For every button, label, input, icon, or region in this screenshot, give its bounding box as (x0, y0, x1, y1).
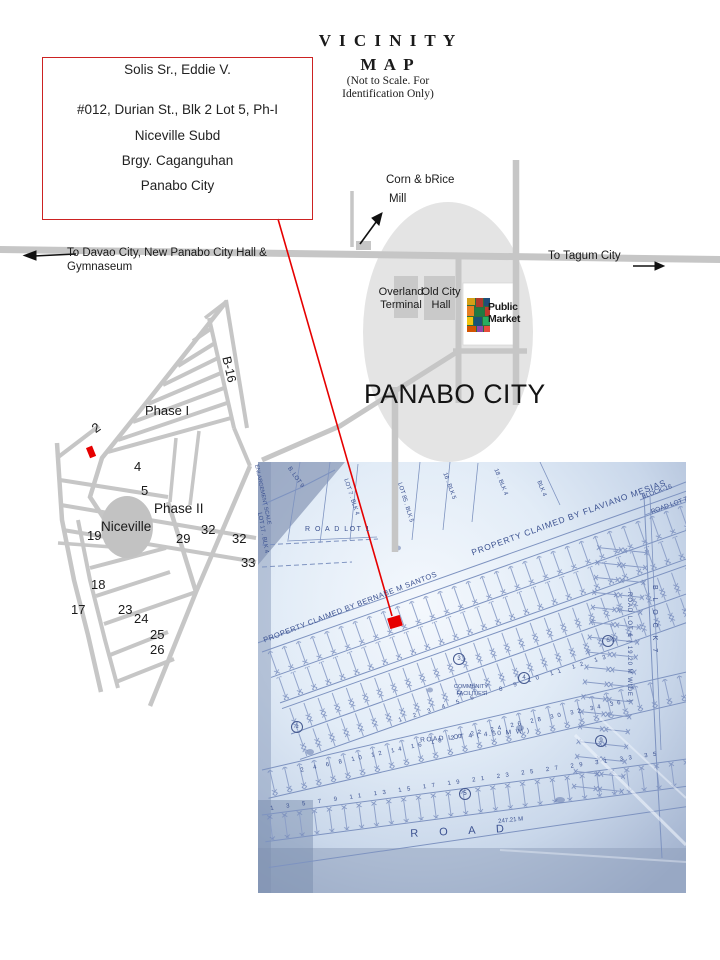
mill-arrow (360, 213, 382, 244)
photo-road-lot6: ROAD LOT 6 ( 19.20 M WIDE ) (626, 592, 632, 703)
market-thumbnail-image (467, 298, 490, 332)
address-barangay: Brgy. Caganguhan (43, 153, 312, 168)
block-number: 4 (134, 460, 141, 475)
page-title-line1: V I C I N I T Y (318, 31, 458, 51)
circled-lot-number: 4 (518, 672, 530, 684)
block-number: 25 (150, 628, 164, 643)
city-name-label: PANABO CITY (364, 379, 546, 409)
vicinity-map-page: V I C I N I T Y M A P (Not to Scale. For… (0, 0, 720, 960)
title-note-line1: (Not to Scale. For (318, 75, 458, 88)
highway-west-label-line2: Gymnaseum (67, 261, 132, 274)
market-label: Public Market (488, 301, 516, 325)
owner-name: Solis Sr., Eddie V. (43, 62, 312, 77)
niceville-label: Niceville (101, 519, 151, 535)
block-number: 33 (241, 556, 255, 571)
circled-lot-number: 5 (459, 788, 471, 800)
block-number: 32 (232, 532, 246, 547)
circled-lot-number: 3 (453, 653, 465, 665)
address-subdivision: Niceville Subd (43, 128, 312, 143)
page-title-line2: M A P (318, 55, 458, 75)
lot-marker-sketch (86, 446, 96, 459)
market-label-line1: Public (488, 301, 516, 313)
block-number: 18 (91, 578, 105, 593)
circled-lot-number: 1 (291, 721, 303, 733)
mill-label-line1: Corn & bRice (386, 174, 454, 187)
city-hall-label: Old City Hall (418, 286, 464, 311)
highway-east-label: To Tagum City (548, 250, 621, 263)
phase1-label: Phase I (145, 404, 189, 419)
block-number: 24 (134, 612, 148, 627)
market-label-line2: Market (488, 313, 516, 325)
circled-lot-number: 9 (595, 735, 607, 747)
east-arrow (633, 262, 664, 270)
city-hall-label-line2: Hall (418, 299, 464, 312)
address-box: Solis Sr., Eddie V. #012, Durian St., Bl… (42, 57, 313, 220)
block-number: 5 (141, 484, 148, 499)
block-number: 26 (150, 643, 164, 658)
block-number: 29 (176, 532, 190, 547)
photo-road-lot1: R O A D LOT 1 (305, 526, 371, 533)
block-number: 23 (118, 603, 132, 618)
circled-lot-number: 6 (602, 635, 614, 647)
block-number: 32 (201, 523, 215, 538)
photo-block7-label: B L O C K 7 (651, 585, 658, 655)
mill-label-line2: Mill (389, 193, 406, 206)
address-city: Panabo City (43, 178, 312, 193)
title-note-line2: Identification Only) (318, 88, 458, 101)
phase2-label: Phase II (154, 501, 204, 517)
block-number: 17 (71, 603, 85, 618)
city-hall-label-line1: Old City (418, 286, 464, 299)
block-number: 19 (87, 529, 101, 544)
address-street: #012, Durian St., Blk 2 Lot 5, Ph-I (43, 102, 312, 117)
highway-west-label-line1: To Davao City, New Panabo City Hall & (67, 247, 267, 260)
